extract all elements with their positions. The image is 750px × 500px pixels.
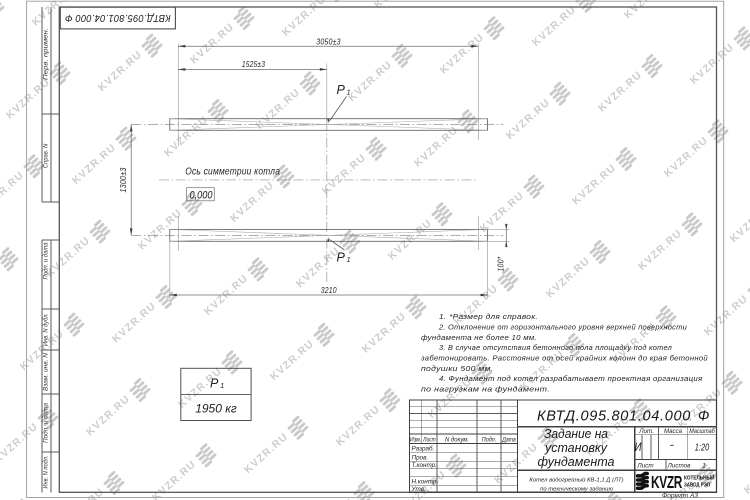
svg-text:KVZR.RU: KVZR.RU xyxy=(688,42,736,87)
svg-text:И: И xyxy=(635,440,642,454)
svg-text:2. Отклонение от горизонтальн: 2. Отклонение от горизонтального уровня … xyxy=(438,324,687,332)
svg-text:установку: установку xyxy=(544,441,608,455)
svg-text:KVZR.RU: KVZR.RU xyxy=(662,135,710,180)
svg-text:KVZR.RU: KVZR.RU xyxy=(228,180,276,225)
svg-text:Подп. и дата: Подп. и дата xyxy=(42,403,50,443)
svg-text:забетонировать. Расстояние от: забетонировать. Расстояние от осей крайн… xyxy=(420,355,708,363)
svg-text:Лит.: Лит. xyxy=(638,428,654,435)
svg-text:Лист: Лист xyxy=(636,462,653,469)
svg-text:KVZR.RU: KVZR.RU xyxy=(728,200,750,245)
svg-text:KVZR.RU: KVZR.RU xyxy=(346,59,394,104)
svg-text:Перв. примен.: Перв. примен. xyxy=(43,28,50,80)
svg-text:KVZR.RU: KVZR.RU xyxy=(544,255,592,300)
svg-text:Ось симметрии котла: Ось симметрии котла xyxy=(185,165,280,177)
svg-text:Т.контр.: Т.контр. xyxy=(412,462,437,469)
svg-text:по техническому заданию: по техническому заданию xyxy=(540,487,613,493)
svg-text:KVZR.RU: KVZR.RU xyxy=(412,124,460,169)
svg-text:Масштаб: Масштаб xyxy=(689,427,715,435)
svg-text:4. Фундамент под котел разраб: 4. Фундамент под котел разрабатывает про… xyxy=(439,375,703,383)
svg-text:Задание на: Задание на xyxy=(544,427,608,441)
svg-text:фундамента не более 10 мм.: фундамента не более 10 мм. xyxy=(421,334,537,342)
svg-text:KVZR.RU: KVZR.RU xyxy=(530,4,578,49)
svg-text:KVZR.RU: KVZR.RU xyxy=(438,31,486,76)
svg-text:подушки 500 мм.: подушки 500 мм. xyxy=(421,365,494,373)
svg-text:1: 1 xyxy=(702,462,706,469)
svg-text:КВТД.095.801.04.000: КВТД.095.801.04.000 xyxy=(537,408,691,424)
svg-text:KVZR.RU: KVZR.RU xyxy=(0,421,40,466)
svg-text:N докум.: N докум. xyxy=(445,436,469,444)
svg-text:Листов: Листов xyxy=(667,462,692,469)
svg-text:Инв. N дубл.: Инв. N дубл. xyxy=(42,313,50,346)
svg-text:KVZR.RU: KVZR.RU xyxy=(570,162,618,207)
svg-text:Ф: Ф xyxy=(698,408,710,424)
svg-text:по нагрузкам на фундамент.: по нагрузкам на фундамент. xyxy=(421,385,550,393)
svg-text:1525±3: 1525±3 xyxy=(242,60,266,69)
svg-text:3. В случае отсутствия бетонн: 3. В случае отсутствия бетонного пола пл… xyxy=(439,344,672,352)
svg-text:Масса: Масса xyxy=(664,428,682,435)
svg-text:KVZR: KVZR xyxy=(651,472,683,492)
svg-text:Н.контр.: Н.контр. xyxy=(412,479,439,486)
svg-text:KVZR.RU: KVZR.RU xyxy=(268,338,316,383)
svg-text:Формат А3: Формат А3 xyxy=(662,492,698,499)
svg-text:КОТЕЛЬНЫЙ: КОТЕЛЬНЫЙ xyxy=(684,474,715,482)
svg-text:KVZR.RU: KVZR.RU xyxy=(84,393,132,438)
svg-text:KVZR.RU: KVZR.RU xyxy=(360,310,408,355)
svg-text:ЗАВОД РЭП: ЗАВОД РЭП xyxy=(684,483,710,489)
svg-text:KVZR.RU: KVZR.RU xyxy=(0,169,26,214)
svg-text:1300±3: 1300±3 xyxy=(119,167,128,192)
svg-text:KVZR.RU: KVZR.RU xyxy=(242,431,290,476)
svg-text:Пров.: Пров. xyxy=(412,454,429,461)
svg-text:KVZR.RU: KVZR.RU xyxy=(4,76,52,121)
svg-text:Подп.: Подп. xyxy=(482,436,497,444)
svg-text:Изм.: Изм. xyxy=(410,437,422,444)
svg-text:Инв. N подл.: Инв. N подл. xyxy=(42,456,50,489)
svg-text:KVZR.RU: KVZR.RU xyxy=(294,245,342,290)
svg-text:KVZR.RU: KVZR.RU xyxy=(702,293,750,338)
svg-text:Дата: Дата xyxy=(501,437,516,444)
svg-text:Утв.: Утв. xyxy=(411,486,426,493)
svg-text:KVZR.RU: KVZR.RU xyxy=(478,190,526,235)
svg-text:KVZR.RU: KVZR.RU xyxy=(162,114,210,159)
svg-text:KVZR.RU: KVZR.RU xyxy=(504,97,552,142)
svg-text:KVZR.RU: KVZR.RU xyxy=(452,283,500,328)
svg-text:KVZR.RU: KVZR.RU xyxy=(280,0,328,39)
svg-text:KVZR.RU: KVZR.RU xyxy=(188,21,236,66)
svg-text:100*: 100* xyxy=(497,256,506,272)
svg-text:KVZR.RU: KVZR.RU xyxy=(334,403,382,448)
svg-text:1. *Размер для справок.: 1. *Размер для справок. xyxy=(439,313,538,321)
svg-text:Справ. N: Справ. N xyxy=(43,143,50,168)
svg-text:Котел водогрейный КВ-1,1 Д (ЛТ: Котел водогрейный КВ-1,1 Д (ЛТ) xyxy=(529,477,623,484)
svg-text:0,000: 0,000 xyxy=(190,190,214,202)
svg-text:Р1: Р1 xyxy=(210,377,224,391)
svg-text:KVZR.RU: KVZR.RU xyxy=(386,217,434,262)
svg-text:1:20: 1:20 xyxy=(695,443,710,454)
svg-text:Разраб.: Разраб. xyxy=(412,445,435,453)
svg-text:Р1: Р1 xyxy=(337,83,351,97)
svg-text:3210: 3210 xyxy=(321,286,337,295)
svg-text:3050±3: 3050±3 xyxy=(316,37,341,46)
svg-text:Лист: Лист xyxy=(422,437,435,444)
svg-text:KVZR.RU: KVZR.RU xyxy=(254,87,302,132)
svg-text:Взам. инв. N: Взам. инв. N xyxy=(43,353,50,391)
svg-text:Подп. и дата: Подп. и дата xyxy=(42,242,50,279)
svg-text:КВТД.095.801.04.000 Ф: КВТД.095.801.04.000 Ф xyxy=(65,12,171,24)
svg-text:KVZR.RU: KVZR.RU xyxy=(372,0,420,11)
svg-text:KVZR.RU: KVZR.RU xyxy=(636,228,684,273)
svg-text:KVZR.RU: KVZR.RU xyxy=(742,451,750,496)
svg-text:KVZR.RU: KVZR.RU xyxy=(308,496,356,500)
svg-text:KVZR.RU: KVZR.RU xyxy=(622,0,670,21)
svg-text:фундамента: фундамента xyxy=(538,455,615,469)
svg-text:Р1: Р1 xyxy=(337,251,351,265)
svg-text:KVZR.RU: KVZR.RU xyxy=(596,69,644,114)
svg-text:KVZR.RU: KVZR.RU xyxy=(96,49,144,94)
svg-text:KVZR.RU: KVZR.RU xyxy=(150,459,198,500)
svg-text:KVZR.RU: KVZR.RU xyxy=(110,300,158,345)
svg-text:1950 кг: 1950 кг xyxy=(195,402,237,416)
svg-text:KVZR.RU: KVZR.RU xyxy=(70,142,118,187)
